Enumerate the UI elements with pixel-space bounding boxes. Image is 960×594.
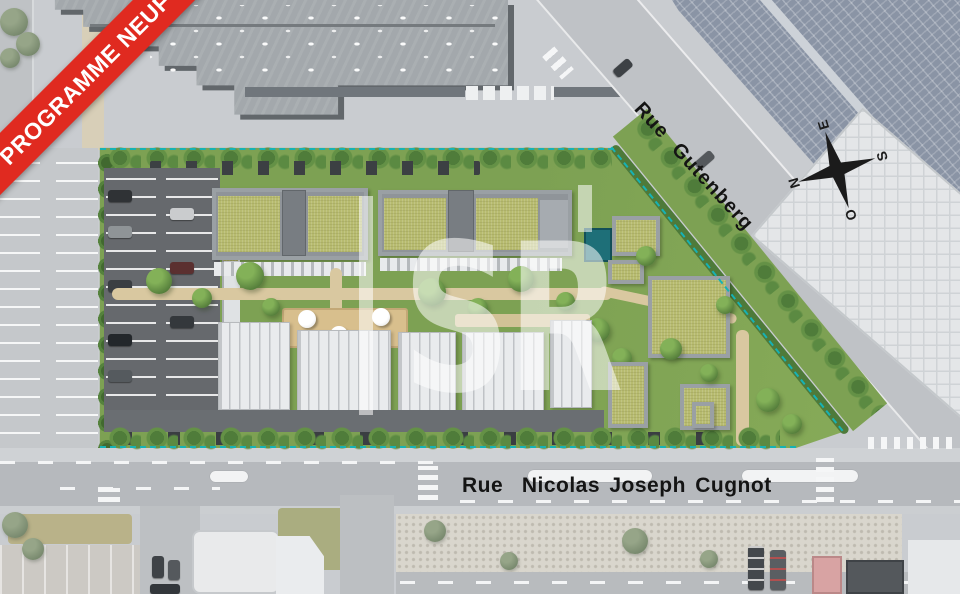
patio-umbrella (298, 310, 316, 328)
cluster-tree (636, 246, 656, 266)
topleft-tree (0, 48, 20, 68)
red-roof-building (812, 556, 842, 594)
gravel-tree (622, 528, 648, 554)
topleft-tree (16, 32, 40, 56)
lane-dashes (0, 461, 440, 464)
parked-car (152, 556, 164, 578)
parked-car (150, 584, 180, 594)
dock-trailers (466, 86, 554, 100)
unit-block (218, 322, 290, 410)
building-a-core (282, 190, 306, 256)
parked-car (108, 334, 132, 346)
garden-tree (262, 298, 280, 316)
compass-e: E (814, 118, 832, 132)
watermark-text: SR (402, 218, 619, 423)
lane-dashes (60, 487, 220, 490)
cluster-tree (660, 338, 682, 360)
parked-car (170, 208, 194, 220)
west-parking-lines (56, 156, 98, 452)
watermark-bar-left (359, 196, 373, 415)
building-a (212, 188, 368, 260)
roof-skylights (150, 5, 500, 77)
cluster-tree (782, 414, 802, 434)
garden-tree (236, 262, 264, 290)
dark-building (846, 560, 904, 594)
crosswalk (816, 458, 834, 502)
gravel-tree (500, 552, 518, 570)
gravel-tree (700, 550, 718, 568)
south-road (340, 495, 394, 594)
gravel-tree (424, 520, 446, 542)
canopy-building (192, 530, 280, 594)
unit-block (297, 330, 391, 412)
service-road (140, 506, 200, 594)
sw-parking-lot (0, 545, 140, 594)
crosswalk (418, 466, 438, 500)
compass-o: O (841, 207, 860, 222)
parked-car (168, 560, 180, 580)
parked-car (170, 262, 194, 274)
parked-car (108, 226, 132, 238)
garden-tree (146, 268, 172, 294)
parked-car (770, 550, 786, 590)
cluster-tree (756, 388, 780, 412)
aerial-site-plan: SR Rue Gutenberg Rue Nicolas Joseph Cugn… (0, 0, 960, 594)
patio-umbrella (372, 308, 390, 326)
compass-s: S (873, 149, 891, 163)
cluster-house (692, 402, 714, 428)
garden-tree (192, 288, 212, 308)
sw-tree (2, 512, 28, 538)
street-label-cugnot: Rue Nicolas Joseph Cugnot (462, 474, 772, 498)
loading-dock-strip (245, 87, 465, 97)
building-a-sedum-left (218, 196, 280, 252)
parked-car (170, 316, 194, 328)
parked-car (108, 370, 132, 382)
crosswalk (98, 488, 120, 502)
cluster-tree (700, 364, 718, 382)
cluster-tree (716, 296, 734, 314)
west-parking-lines (0, 156, 40, 452)
bus-lane-pill (210, 471, 248, 482)
compass-n: N (785, 176, 803, 190)
building-a-sedum-right (308, 196, 362, 252)
property-line-bottom (100, 446, 796, 448)
gutenberg-crosswalk (542, 46, 574, 79)
lane-dashes (460, 500, 960, 503)
property-line-top (100, 148, 614, 150)
sw-tree (22, 538, 44, 560)
parked-car (748, 546, 764, 590)
compass-star (787, 120, 887, 220)
white-building-se (908, 540, 960, 594)
crosswalk (868, 437, 952, 449)
parked-car (108, 190, 132, 202)
